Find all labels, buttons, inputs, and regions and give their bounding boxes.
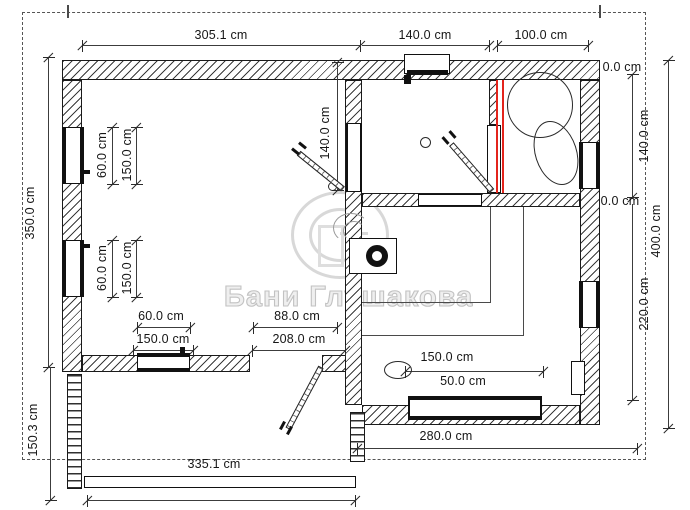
dim-line-door-88 [253, 327, 337, 328]
dim-label-left-main: 350.0 cm [23, 186, 37, 239]
red-partition-line [496, 80, 498, 193]
stove-chimney [366, 245, 388, 267]
dim-label-win1-sill: 150.0 cm [120, 128, 134, 181]
window-handle [84, 170, 90, 174]
dim-tick [87, 500, 89, 502]
dim-label-top-steam: 100.0 cm [514, 28, 567, 42]
dim-label-bottom-porch: 335.1 cm [187, 457, 240, 471]
dim-label-bottom-rest: 280.0 cm [419, 429, 472, 443]
dim-label-rest-50: 50.0 cm [440, 374, 486, 388]
window-top-wash-stop [404, 75, 411, 84]
dim-line-mid-140 [337, 62, 338, 190]
dim-tick [668, 428, 670, 430]
dim-tick [337, 190, 339, 192]
dim-line-350 [48, 57, 49, 367]
dim-tick [112, 240, 114, 242]
rest-lamp-oval [384, 361, 412, 379]
dim-tick [337, 327, 339, 329]
window-bottom-rest [408, 396, 542, 420]
dim-label-win2-sill: 150.0 cm [120, 241, 134, 294]
dim-label-door-208: 208.0 cm [272, 332, 325, 346]
dim-tick [632, 74, 634, 76]
dim-label-right-total: 400.0 cm [649, 204, 663, 257]
red-partition-line [502, 80, 504, 193]
dim-line-400 [668, 60, 669, 428]
dim-line-win3-60 [137, 327, 190, 328]
boundary-tick [599, 5, 601, 18]
dim-line-win2-150 [136, 240, 137, 297]
dim-label-win1-width: 60.0 cm [95, 132, 109, 178]
dim-tick [497, 45, 499, 47]
dim-tick [112, 127, 114, 129]
window-handle [84, 244, 90, 248]
dim-tick [588, 45, 590, 47]
floor-plan: Бани Глушакова [0, 0, 690, 510]
dim-label-left-porch: 150.3 cm [26, 403, 40, 456]
dim-label-win2-width: 60.0 cm [95, 245, 109, 291]
rest-fixture [571, 361, 585, 395]
dim-label-right-steam: 140.0 cm [637, 109, 651, 162]
dim-line-305 [82, 45, 360, 46]
dim-label-zero-top: 0.0 cm [603, 60, 642, 74]
dim-label-top-wash: 140.0 cm [398, 28, 451, 42]
dim-tick [136, 184, 138, 186]
wall-top [62, 60, 600, 80]
dim-tick [136, 127, 138, 129]
wall-left [62, 80, 82, 372]
dim-line-335 [87, 500, 355, 501]
dim-line-door-208 [252, 350, 345, 351]
dim-line-100 [497, 45, 588, 46]
dim-line-rest-150 [405, 371, 543, 372]
dim-line-win1-150 [136, 127, 137, 184]
dim-tick [48, 57, 50, 59]
dim-tick [82, 45, 84, 47]
dim-tick [137, 327, 139, 329]
dim-line-280 [357, 448, 637, 449]
dim-tick [136, 297, 138, 299]
dim-tick [193, 350, 195, 352]
dim-tick [190, 327, 192, 329]
dim-tick [345, 350, 347, 352]
dim-tick [133, 350, 135, 352]
ceiling-line [362, 302, 491, 303]
wash-drain-circle [420, 137, 431, 148]
dim-line-140-top [362, 45, 489, 46]
dim-line-150-3 [50, 367, 51, 500]
dim-line-140-right [632, 74, 633, 197]
dim-label-rest-150: 150.0 cm [420, 350, 473, 364]
dim-tick [543, 371, 545, 373]
dim-label-win3-sill: 150.0 cm [136, 332, 189, 346]
window-top-wash-bar [407, 70, 448, 75]
dim-tick [489, 45, 491, 47]
dim-tick [50, 500, 52, 502]
wall-bottom-main-b [322, 355, 346, 372]
dim-tick [136, 240, 138, 242]
ceiling-line [523, 207, 524, 336]
ceiling-line [490, 207, 491, 303]
dim-label-mid-door: 140.0 cm [318, 106, 332, 159]
dim-label-door-88: 88.0 cm [274, 309, 320, 323]
porch-post-left [67, 374, 82, 489]
dim-tick [253, 327, 255, 329]
dim-label-zero-bottom: 0.0 cm [601, 194, 640, 208]
dim-line-220 [632, 204, 633, 400]
window-handle [180, 347, 185, 354]
dim-line-win1-60 [112, 127, 113, 184]
boundary-tick [67, 5, 69, 18]
dim-tick [337, 62, 339, 64]
dim-tick [637, 448, 639, 450]
opening-wash-rest [418, 194, 482, 206]
window-right-steam [579, 142, 600, 189]
dim-line-win2-60 [112, 240, 113, 297]
dim-tick [355, 500, 357, 502]
dim-tick [252, 350, 254, 352]
dim-tick [357, 448, 359, 450]
window-right-rest [579, 281, 600, 328]
window-left-2 [62, 240, 84, 297]
window-left-1 [62, 127, 84, 184]
ceiling-line [362, 335, 524, 336]
porch-deck [84, 476, 356, 488]
dim-label-top-main: 305.1 cm [194, 28, 247, 42]
dim-label-win3-width: 60.0 cm [138, 309, 184, 323]
dim-tick [112, 184, 114, 186]
dim-label-right-rest: 220.0 cm [637, 277, 651, 330]
window-bottom-main [137, 353, 190, 372]
dim-tick [668, 60, 670, 62]
dim-tick [112, 297, 114, 299]
door-frame-mid-wall [346, 123, 362, 192]
dim-tick [632, 400, 634, 402]
